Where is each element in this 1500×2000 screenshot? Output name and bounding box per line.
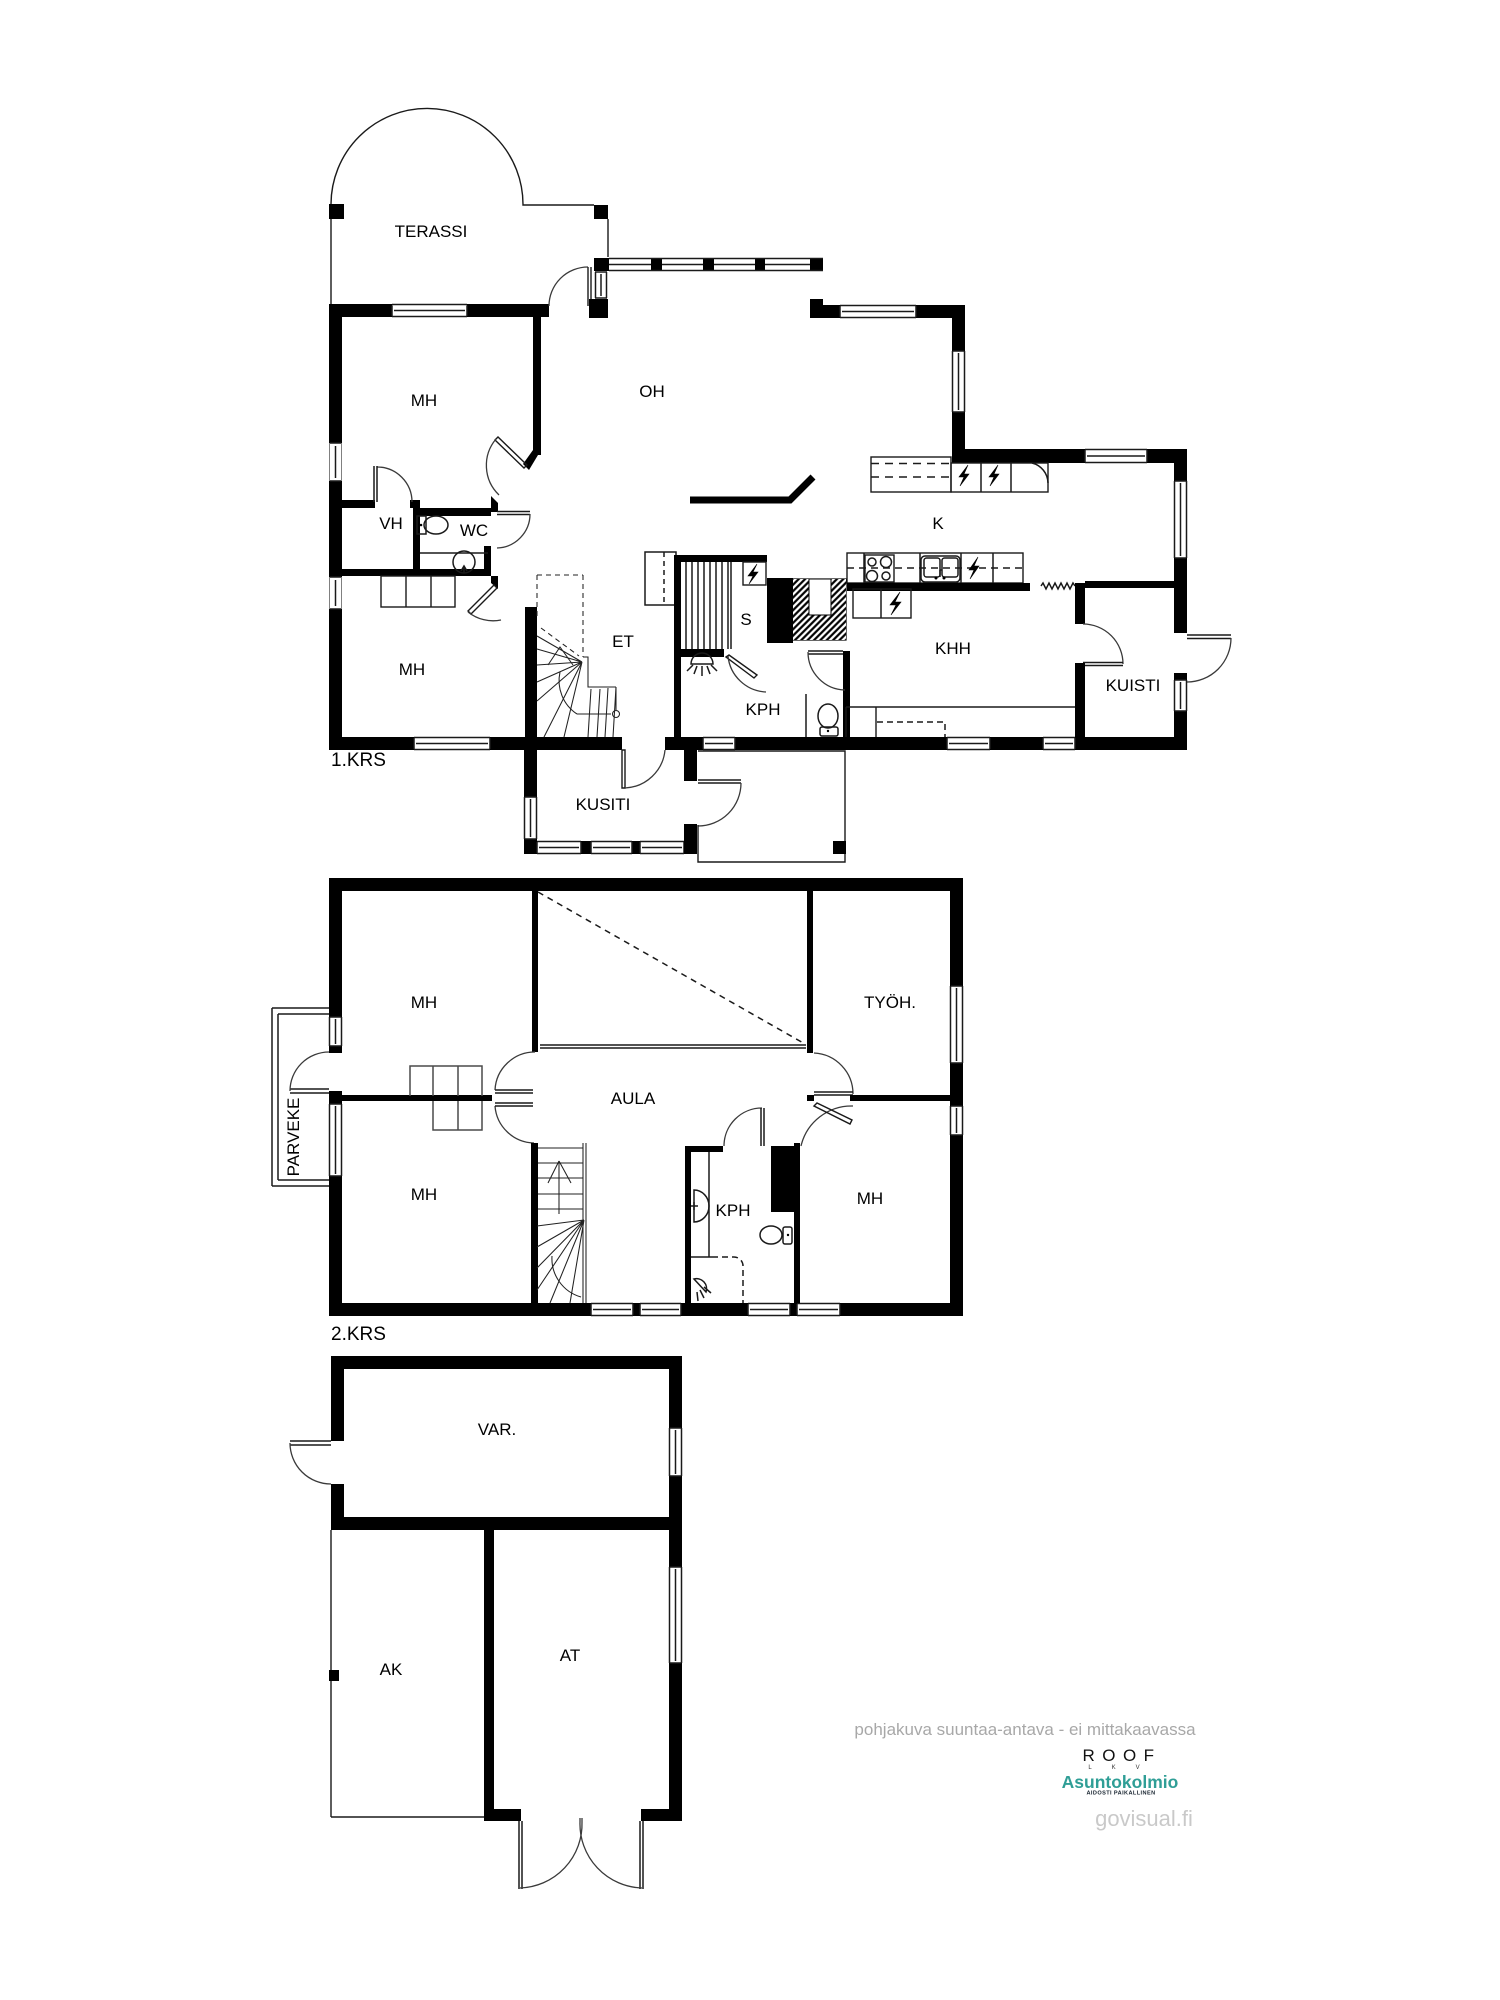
svg-text:AULA: AULA bbox=[611, 1089, 656, 1108]
svg-text:AK: AK bbox=[380, 1660, 403, 1679]
svg-text:ROOF: ROOF bbox=[1082, 1746, 1161, 1765]
svg-text:K: K bbox=[932, 514, 944, 533]
svg-text:KUSITI: KUSITI bbox=[576, 795, 631, 814]
svg-text:MH: MH bbox=[411, 993, 437, 1012]
svg-text:LKV: LKV bbox=[1088, 1765, 1159, 1771]
svg-text:MH: MH bbox=[411, 391, 437, 410]
svg-text:PARVEKE: PARVEKE bbox=[284, 1098, 303, 1177]
svg-text:VAR.: VAR. bbox=[478, 1420, 516, 1439]
svg-text:TYÖH.: TYÖH. bbox=[864, 993, 916, 1012]
svg-text:AT: AT bbox=[560, 1646, 580, 1665]
svg-text:AIDOSTI PAIKALLINEN: AIDOSTI PAIKALLINEN bbox=[1086, 1791, 1155, 1797]
svg-text:S: S bbox=[740, 610, 751, 629]
svg-text:2.KRS: 2.KRS bbox=[331, 1324, 386, 1345]
svg-text:1.KRS: 1.KRS bbox=[331, 750, 386, 771]
svg-text:OH: OH bbox=[639, 382, 665, 401]
svg-text:VH: VH bbox=[379, 514, 403, 533]
svg-text:KPH: KPH bbox=[746, 700, 781, 719]
svg-text:KUISTI: KUISTI bbox=[1106, 676, 1161, 695]
svg-text:Asuntokolmio: Asuntokolmio bbox=[1062, 1772, 1179, 1792]
svg-text:KHH: KHH bbox=[935, 639, 971, 658]
svg-text:MH: MH bbox=[411, 1185, 437, 1204]
svg-text:govisual.fi: govisual.fi bbox=[1095, 1806, 1193, 1831]
svg-text:WC: WC bbox=[460, 521, 488, 540]
svg-text:ET: ET bbox=[612, 632, 634, 651]
svg-text:pohjakuva suuntaa-antava - ei: pohjakuva suuntaa-antava - ei mittakaava… bbox=[854, 1720, 1196, 1739]
svg-text:MH: MH bbox=[399, 660, 425, 679]
svg-text:MH: MH bbox=[857, 1189, 883, 1208]
svg-text:KPH: KPH bbox=[716, 1201, 751, 1220]
svg-text:TERASSI: TERASSI bbox=[395, 222, 468, 241]
